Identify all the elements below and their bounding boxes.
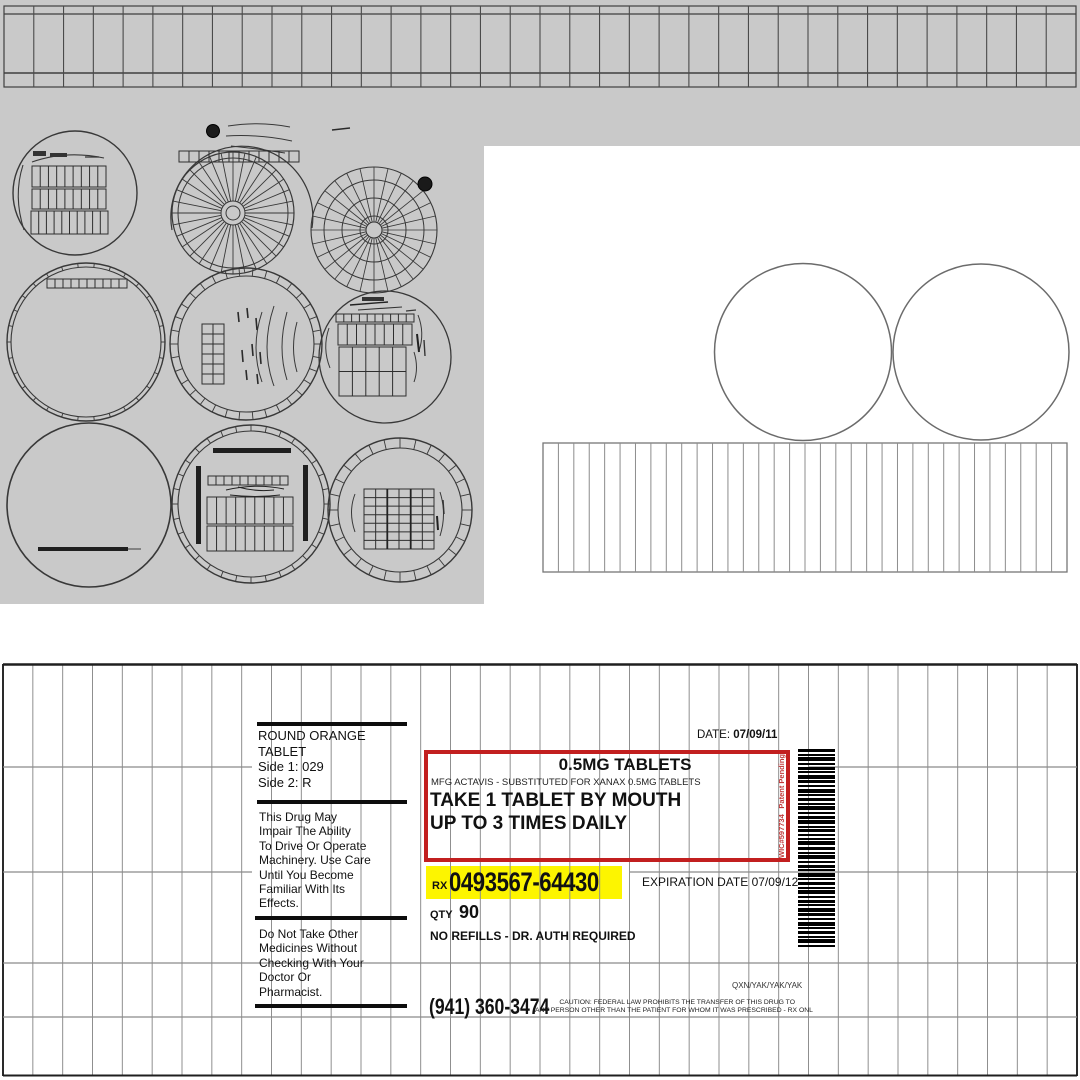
bottle-ring-uv-island-4 — [328, 438, 472, 582]
instructions-line-2: UP TO 3 TIMES DAILY — [430, 813, 627, 835]
cap-side-strip-wireframe — [543, 443, 1067, 572]
code-line: QXN/YAK/YAK/YAK — [732, 981, 802, 990]
pill-description-line: TABLET — [258, 744, 366, 760]
expiration-date: EXPIRATION DATE 07/09/12 — [642, 875, 798, 889]
instructions-line-1: TAKE 1 TABLET BY MOUTH — [430, 790, 681, 812]
pill-description-line: Side 2: R — [258, 775, 366, 791]
caution-line: CAUTION: FEDERAL LAW PROHIBITS THE TRANS… — [535, 999, 795, 1007]
barcode — [798, 749, 835, 947]
bottle-side-uv-island — [13, 131, 137, 255]
date-label: DATE: — [697, 729, 730, 741]
wireframe-and-grid-canvas — [0, 0, 1080, 1080]
caution-text: CAUTION: FEDERAL LAW PROHIBITS THE TRANS… — [535, 999, 795, 1014]
side-note-status: Patent Pending — [777, 754, 788, 809]
divider-rule-1 — [257, 722, 407, 726]
warning-line: Impair The Ability — [259, 824, 371, 838]
side-note-id: WIC#597734 — [777, 814, 788, 858]
warning-line: Doctor Or — [259, 970, 364, 984]
pharmacy-phone: (941) 360-3474 — [429, 994, 549, 1020]
bottle-ring-uv-island-1 — [7, 263, 165, 421]
warning-line: Effects. — [259, 896, 371, 910]
divider-rule-3 — [255, 916, 407, 920]
strength-text: 0.5MG TABLETS — [460, 755, 790, 775]
cap-top-uv-island — [171, 124, 350, 274]
warning-line: Pharmacist. — [259, 985, 364, 999]
warning-line: Do Not Take Other — [259, 927, 364, 941]
warning-line: Checking With Your — [259, 956, 364, 970]
refills-line: NO REFILLS - DR. AUTH REQUIRED — [430, 929, 636, 943]
mfg-line: MFG ACTAVIS - SUBSTITUTED FOR XANAX 0.5M… — [431, 777, 701, 788]
pill-description-line: ROUND ORANGE — [258, 728, 366, 744]
cap-top-small-uv-island — [311, 167, 437, 293]
date-value: 07/09/11 — [733, 729, 777, 741]
bottle-shoulder-uv-island — [319, 291, 451, 423]
warning-line: Medicines Without — [259, 941, 364, 955]
bottle-ring-uv-island-2 — [170, 268, 322, 420]
bottle-base-uv-island — [7, 423, 171, 587]
texture-sheet: ROUND ORANGE TABLET Side 1: 029 Side 2: … — [0, 0, 1080, 1080]
rx-number: 0493567-64430 — [449, 867, 599, 898]
caution-line: ANY PERSON OTHER THAN THE PATIENT FOR WH… — [535, 1007, 795, 1015]
divider-rule-2 — [257, 800, 407, 804]
patent-side-note: WIC#597734 Patent Pending — [777, 754, 788, 858]
pill-description: ROUND ORANGE TABLET Side 1: 029 Side 2: … — [258, 728, 366, 790]
bottle-ring-uv-island-3 — [172, 425, 330, 583]
warning-line: To Drive Or Operate — [259, 839, 371, 853]
cylinder-strip-wireframe — [4, 6, 1076, 87]
divider-rule-4 — [255, 1004, 407, 1008]
warning-other-medicines: Do Not Take Other Medicines Without Chec… — [259, 927, 364, 999]
warning-impairment: This Drug May Impair The Ability To Driv… — [259, 810, 371, 911]
warning-line: Machinery. Use Care — [259, 853, 371, 867]
pill-description-line: Side 1: 029 — [258, 759, 366, 775]
warning-line: Familiar With Its — [259, 882, 371, 896]
warning-line: Until You Become — [259, 868, 371, 882]
qty-value: 90 — [459, 902, 479, 923]
fill-date: DATE: 07/09/11 — [697, 729, 777, 741]
qty-label: QTY — [430, 909, 453, 921]
warning-line: This Drug May — [259, 810, 371, 824]
rx-prefix: RX — [432, 880, 447, 892]
cap-circles-wireframe — [715, 264, 1070, 441]
